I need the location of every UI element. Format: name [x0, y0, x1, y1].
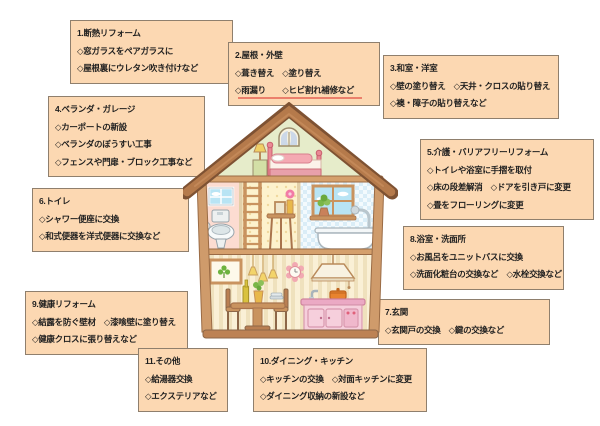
category-title: 6.トイレ [39, 193, 182, 211]
category-title: 1.断熱リフォーム [77, 25, 226, 43]
category-item: ◇カーポートの新設 [55, 119, 198, 137]
category-box-3: 3.和室・洋室◇壁の塗り替え ◇天井・クロスの貼り替え◇襖・障子の貼り替えなど [383, 55, 559, 119]
category-title: 5.介護・バリアフリーリフォーム [427, 144, 587, 162]
category-box-7: 7.玄関◇玄関戸の交換 ◇鍵の交換など [378, 299, 550, 345]
category-title: 8.浴室・洗面所 [410, 231, 557, 249]
category-title: 2.屋根・外壁 [235, 47, 373, 65]
category-title: 9.健康リフォーム [32, 296, 181, 314]
category-item: ◇キッチンの交換 ◇対面キッチンに変更 [260, 371, 420, 389]
mid-floor-beam [200, 249, 381, 255]
room-divider-left [239, 180, 243, 250]
category-item: ◇和式便器を洋式便器に交換など [39, 228, 182, 246]
category-item: ◇トイレや浴室に手摺を取付 [427, 162, 587, 180]
category-item: ◇健康クロスに張り替えなど [32, 331, 181, 349]
category-box-11: 11.その他◇給湯器交換◇エクステリアなど [138, 348, 228, 412]
house-base [203, 330, 378, 338]
house-svg [183, 102, 398, 345]
category-item: ◇フェンスや門扉・ブロック工事など [55, 154, 198, 172]
category-item: ◇床の段差解消 ◇ドアを引き戸に変更 [427, 179, 587, 197]
category-box-8: 8.浴室・洗面所◇お風呂をユニットバスに交換◇洗面化粧台の交換など ◇水栓交換な… [403, 226, 564, 290]
category-item: ◇ベランダのぼうすい工事 [55, 136, 198, 154]
category-title: 4.ベランダ・ガレージ [55, 101, 198, 119]
category-item: ◇襖・障子の貼り替えなど [390, 95, 552, 113]
category-item: ◇窓ガラスをペアガラスに [77, 43, 226, 61]
category-title: 3.和室・洋室 [390, 60, 552, 78]
category-item: ◇シャワー便座に交換 [39, 211, 182, 229]
category-item: ◇結露を防ぐ壁材 ◇漆喰壁に塗り替え [32, 314, 181, 332]
category-box-10: 10.ダイニング・キッチン◇キッチンの交換 ◇対面キッチンに変更◇ダイニング収納… [253, 348, 427, 412]
category-box-4: 4.ベランダ・ガレージ◇カーポートの新設◇ベランダのぼうすい工事◇フェンスや門扉… [48, 96, 205, 177]
category-box-2: 2.屋根・外壁◇葺き替え ◇塗り替え◇雨漏り ◇ヒビ割れ補修など [228, 42, 380, 106]
category-item: ◇お風呂をユニットバスに交換 [410, 249, 557, 267]
cutaway-house-illustration [183, 102, 398, 345]
category-item: ◇給湯器交換 [145, 371, 221, 389]
renovation-diagram: 1.断熱リフォーム◇窓ガラスをペアガラスに◇屋根裏にウレタン吹き付けなど2.屋根… [0, 0, 600, 426]
category-item: ◇玄関戸の交換 ◇鍵の交換など [385, 322, 543, 340]
category-title: 7.玄関 [385, 304, 543, 322]
category-box-5: 5.介護・バリアフリーリフォーム◇トイレや浴室に手摺を取付◇床の段差解消 ◇ドア… [420, 139, 594, 220]
category-item: ◇洗面化粧台の交換など ◇水栓交換など [410, 266, 557, 284]
category-item: ◇葺き替え ◇塗り替え [235, 65, 373, 83]
category-box-1: 1.断熱リフォーム◇窓ガラスをペアガラスに◇屋根裏にウレタン吹き付けなど [70, 20, 233, 84]
category-item: ◇エクステリアなど [145, 388, 221, 406]
category-box-9: 9.健康リフォーム◇結露を防ぐ壁材 ◇漆喰壁に塗り替え◇健康クロスに張り替えなど [25, 291, 188, 355]
category-item: ◇ダイニング収納の新設など [260, 388, 420, 406]
wall-frame-clover [210, 260, 241, 283]
category-item: ◇畳をフローリングに変更 [427, 197, 587, 215]
category-item: ◇壁の塗り替え ◇天井・クロスの貼り替え [390, 78, 552, 96]
category-box-6: 6.トイレ◇シャワー便座に交換◇和式便器を洋式便器に交換など [32, 188, 189, 252]
attic-floor-beam [198, 176, 383, 182]
category-item: ◇屋根裏にウレタン吹き付けなど [77, 60, 226, 78]
thin-red-line [238, 97, 362, 99]
category-title: 10.ダイニング・キッチン [260, 353, 420, 371]
category-title: 11.その他 [145, 353, 221, 371]
room-divider-right [297, 180, 301, 250]
